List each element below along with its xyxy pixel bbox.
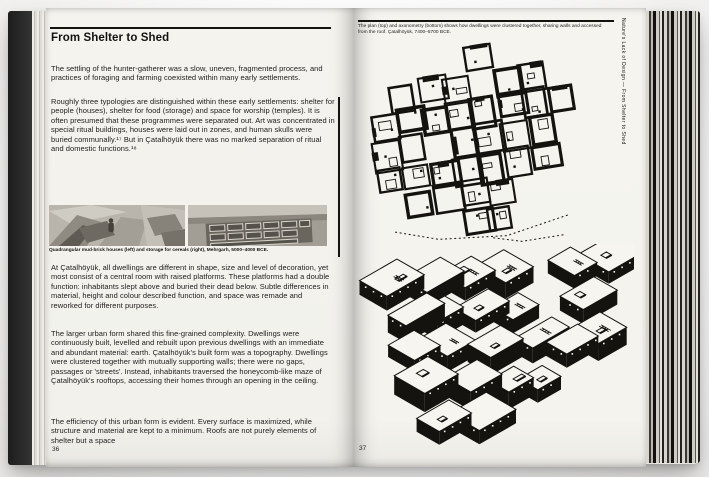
photo-mudbrick-houses [49,205,185,246]
axonometric-figure [356,244,634,456]
body-paragraph-1: The settling of the hunter-gatherer was … [51,64,335,83]
photo-row [49,205,336,246]
body-paragraph-4: The larger urban form shared this fine-g… [51,329,335,385]
page-number-left: 36 [52,446,59,453]
book-spread: From Shelter to Shed The settling of the… [8,8,700,469]
figure-caption: The plan (top) and axonometry (bottom) s… [358,24,610,36]
running-head-vertical: Nature's Lack of Design — From Shelter t… [620,18,626,238]
right-page: The plan (top) and axonometry (bottom) s… [354,8,646,467]
plan-figure [360,42,596,248]
body-paragraph-5: The efficiency of this urban form is evi… [51,417,335,445]
page-edges-left [32,11,46,465]
photo-cereal-storage [188,205,327,246]
title-rule [50,27,331,29]
page-number-right: 37 [359,445,366,452]
photo-caption: Quadrangular mud-brick houses (left) and… [49,248,335,254]
margin-rule [338,97,340,257]
page-edges-right [646,11,700,463]
photo-of-open-book: From Shelter to Shed The settling of the… [0,0,709,477]
left-page: From Shelter to Shed The settling of the… [46,8,354,467]
body-paragraph-2: Roughly three typologies are distinguish… [51,97,335,153]
book-cover-edge [8,11,32,465]
body-paragraph-3: At Çatalhöyük, all dwellings are differe… [51,263,335,310]
caption-rule [358,20,614,22]
chapter-title: From Shelter to Shed [51,32,169,44]
